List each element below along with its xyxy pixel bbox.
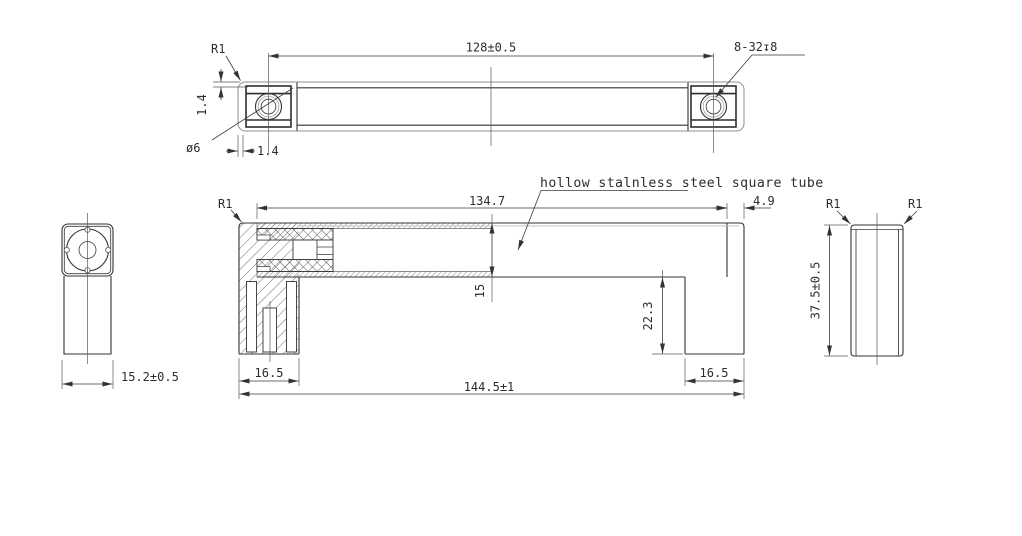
fillet-label-right-a: R1: [826, 197, 840, 211]
leg-slot-left: [247, 282, 257, 353]
dim-overall-length: 144.5±1: [464, 380, 515, 394]
drawing-page: 128±0.5 8-32↧8 R1 1.4 ø6 1.4: [0, 0, 1022, 536]
material-note: hollow stalnless steel square tube: [540, 176, 824, 191]
dim-handle-height: 37.5±0.5: [809, 262, 823, 320]
leg-slot-right: [287, 282, 297, 353]
dim-leg-width-left: 16.5: [255, 366, 284, 380]
boss-cavity: [293, 240, 333, 260]
dim-handle-depth: 15.2±0.5: [121, 370, 179, 384]
insert-notch-lower: [257, 267, 270, 272]
dim-end-cap-face: 4.9: [753, 194, 775, 208]
hole-diameter-label: ø6: [186, 141, 200, 155]
insert-notch-upper: [257, 235, 270, 240]
fillet-label-front: R1: [218, 197, 232, 211]
bore-nub-left: [64, 247, 69, 252]
sheet-background: [0, 0, 1022, 536]
dim-tube-height: 15: [473, 284, 487, 298]
dim-tube-length: 134.7: [469, 194, 505, 208]
bore-nub-right: [106, 247, 111, 252]
dim-wall-thickness-vertical: 1.4: [195, 94, 209, 116]
dim-leg-width-right: 16.5: [700, 366, 729, 380]
dim-leg-drop: 22.3: [641, 302, 655, 331]
thread-depth-callout: 8-32↧8: [734, 40, 777, 54]
tube-bottom-wall: [257, 272, 492, 278]
dim-wall-thickness-horizontal: 1.4: [257, 144, 279, 158]
fillet-label-top: R1: [211, 42, 225, 56]
dim-hole-spacing: 128±0.5: [466, 41, 517, 55]
engineering-drawing: 128±0.5 8-32↧8 R1 1.4 ø6 1.4: [0, 0, 1022, 536]
fillet-label-right-b: R1: [908, 197, 922, 211]
